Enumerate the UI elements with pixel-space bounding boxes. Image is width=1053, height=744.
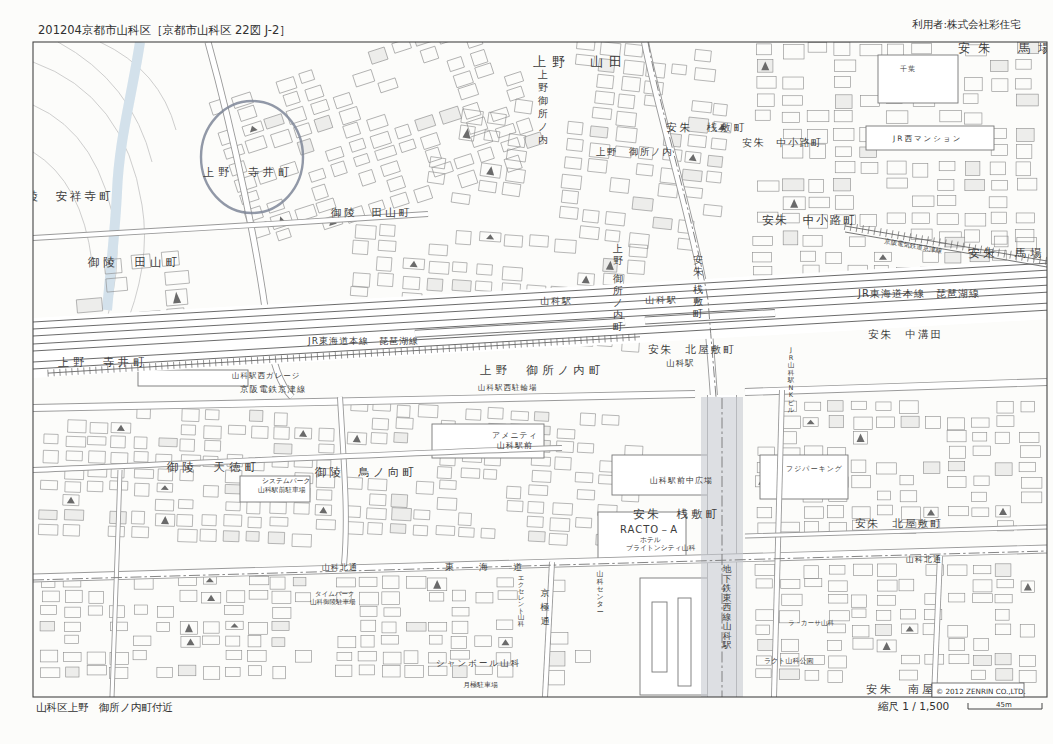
map-label-ueno-terai-2: 上野 寺井町 bbox=[58, 356, 148, 369]
map-label-racto-park: ラクト山科公園 bbox=[764, 657, 814, 665]
map-label-ueno-gosho-v2: 御 bbox=[613, 273, 623, 284]
map-canvas[interactable]: 201204京都市山科区［京都市山科区 22図 J-2］ 利用者:株式会社彩住宅… bbox=[0, 0, 1053, 744]
map-label-nk-bldg: ル bbox=[788, 406, 795, 414]
map-label-plaza: 山科駅前中広場 bbox=[650, 476, 713, 485]
building-triangle-marker bbox=[999, 508, 1007, 515]
building-triangle-marker bbox=[582, 275, 591, 283]
map-label-anshu-nakakoji-2: 安朱 中小路町 bbox=[762, 213, 857, 227]
svg-text:45m: 45m bbox=[996, 701, 1012, 709]
building-triangle-marker bbox=[486, 234, 494, 240]
map-label-fuji-parking: フジパーキング bbox=[786, 465, 843, 473]
map-label-ueno-gosho-v2: 所 bbox=[613, 285, 623, 296]
large-building-outline bbox=[878, 55, 958, 103]
building-triangle-marker bbox=[927, 509, 935, 515]
building-triangle-marker bbox=[410, 260, 418, 267]
map-label-cycle-park: 山科駅西駐輪場 bbox=[478, 383, 538, 392]
map-label-subway-v: 地 bbox=[722, 564, 732, 574]
building-triangle-marker bbox=[231, 623, 239, 627]
map-label-kyogoku-v: 京 bbox=[541, 588, 550, 598]
map-label-ueno-terai-1: 上野 寺井町 bbox=[203, 166, 293, 179]
building-triangle-marker bbox=[187, 638, 195, 645]
map-content: 上野 山田安朱 馬場安朱 桟敷町上野 御所ノ内安朱 中小路町安朱 中小路町御陵 … bbox=[11, 8, 1053, 697]
map-label-jr-tokaido-r: JR東海道本線 琵琶湖線 bbox=[857, 288, 980, 299]
map-label-subway-v: 東 bbox=[723, 593, 732, 603]
building-block bbox=[38, 403, 339, 548]
map-label-chanbord: シャンボール山科 bbox=[436, 658, 521, 668]
map-label-hotel-1: ホテル bbox=[640, 536, 661, 544]
map-label-anshu-sajiki-v: 敷 bbox=[693, 296, 703, 307]
map-label-anshu-kitayashiki-2: 安朱 北屋敷町 bbox=[855, 517, 943, 529]
map-label-sta-3: 山科駅 bbox=[666, 358, 695, 368]
large-building-outline bbox=[652, 602, 667, 672]
map-label-ueno-gosho-v1: 野 bbox=[538, 82, 548, 93]
building-triangle-marker bbox=[879, 254, 887, 259]
map-label-mansion: JR西マンション bbox=[892, 134, 962, 143]
map-label-center-v: ー bbox=[597, 608, 604, 616]
sheet-footer-area: 山科区上野 御所ノ内町付近 bbox=[36, 701, 173, 713]
building-block bbox=[40, 576, 311, 680]
building-triangle-marker bbox=[433, 580, 441, 589]
map-label-subway-v: 科 bbox=[723, 631, 732, 641]
building-triangle-marker bbox=[1024, 583, 1032, 591]
building-triangle-marker bbox=[906, 626, 914, 631]
map-label-ueno-gosho-h: 上野 御所ノ内町 bbox=[480, 363, 604, 377]
scale-label: 縮尺 1 / 1,500 bbox=[877, 700, 949, 712]
building-triangle-marker bbox=[248, 125, 257, 133]
building-triangle-marker bbox=[161, 516, 169, 524]
map-label-goryo-tentoku: 御陵 天徳町 bbox=[166, 460, 260, 474]
map-label-ueno-gosho-v2: 町 bbox=[613, 321, 623, 332]
map-label-anshu-nakamizota: 安朱 中溝田 bbox=[868, 328, 943, 340]
map-label-ueno-gosho-v1: ノ bbox=[538, 121, 548, 132]
map-label-anshu-sajiki-top: 安朱 桟敷町 bbox=[666, 121, 747, 133]
map-label-west-garage: 山科駅西ガレージ bbox=[232, 371, 301, 380]
map-label-ueno-gosho-v2: ノ bbox=[613, 297, 623, 308]
map-label-goryo-anshoji: 御陵 安祥寺町 bbox=[11, 189, 114, 203]
map-label-ueno-gosho-top: 上野 御所ノ内 bbox=[596, 146, 673, 157]
map-label-kita-dori-2: 山科北通 bbox=[906, 554, 942, 564]
building-triangle-marker bbox=[501, 639, 509, 645]
map-label-system-park-2: 山科駅前駐車場 bbox=[258, 486, 306, 494]
sheet-title: 201204京都市山科区［京都市山科区 22図 J-2］ bbox=[38, 23, 291, 37]
building-triangle-marker bbox=[299, 430, 307, 437]
map-label-subway-v: 山 bbox=[723, 621, 732, 631]
map-label-anshu-sajiki-v: 朱 bbox=[693, 266, 703, 277]
map-label-keihan-l: 京阪電鉄京津線 bbox=[240, 384, 307, 394]
map-label-la-casa: ラ・カーサ山科 bbox=[788, 619, 834, 627]
map-label-kita-dori-1: 山科北通 bbox=[322, 562, 358, 572]
map-label-excellent-v: 科 bbox=[518, 620, 525, 628]
map-label-anshu-baba-e: 安朱 馬場 bbox=[968, 246, 1046, 260]
svg-text:© 2012 ZENRIN CO.,LTD.: © 2012 ZENRIN CO.,LTD. bbox=[936, 687, 1026, 696]
map-label-anshu-kitayashiki-1: 安朱 北屋敷町 bbox=[648, 343, 736, 355]
map-label-goryo-tayama-1: 御陵 田山町 bbox=[330, 206, 412, 218]
map-label-goryo-torinomukai: 御陵 鳥ノ向町 bbox=[314, 465, 417, 479]
map-label-subway-v: 鉄 bbox=[722, 583, 732, 593]
map-label-tsukigime: 月極駐車場 bbox=[463, 681, 498, 689]
map-label-ueno-gosho-v2: 野 bbox=[613, 255, 623, 266]
building-triangle-marker bbox=[67, 497, 75, 504]
map-label-kyogoku-v: 極 bbox=[540, 602, 550, 612]
map-label-subway-v: 駅 bbox=[722, 640, 732, 650]
map-label-anshu-baba-ne: 安朱 馬場 bbox=[958, 41, 1053, 55]
map-label-time-park-2: 山科御陵駐車場 bbox=[310, 598, 356, 606]
map-label-ueno-gosho-v1: 所 bbox=[538, 108, 548, 119]
map-label-subway-v: 線 bbox=[722, 612, 732, 622]
building-block bbox=[548, 580, 591, 685]
map-label-sta-1: 山科駅 bbox=[540, 296, 573, 306]
building-triangle-marker bbox=[117, 425, 125, 431]
zenrin-map-page: 201204京都市山科区［京都市山科区 22図 J-2］ 利用者:株式会社彩住宅… bbox=[0, 0, 1053, 744]
copyright-box: © 2012 ZENRIN CO.,LTD. bbox=[932, 683, 1026, 697]
map-label-ueno-gosho-v2: 内 bbox=[613, 309, 623, 320]
building-triangle-marker bbox=[689, 154, 698, 162]
large-building-outline bbox=[612, 455, 712, 495]
map-label-racto: RACTO－A bbox=[620, 524, 678, 535]
map-label-ueno-gosho-v1: 上 bbox=[537, 69, 548, 80]
building-triangle-marker bbox=[790, 199, 798, 208]
map-label-subway-v: 下 bbox=[723, 574, 732, 584]
sheet-user: 利用者:株式会社彩住宅 bbox=[912, 18, 1021, 30]
map-label-anshu-sajiki-2: 安朱 桟敷町 bbox=[633, 507, 720, 521]
map-label-amenity-1: アメニティ bbox=[492, 431, 538, 440]
map-label-amenity-2: 山科駅前 bbox=[497, 441, 533, 450]
building-triangle-marker bbox=[172, 291, 181, 303]
map-label-sta-2: 山科駅 bbox=[645, 295, 678, 305]
map-label-anshu-sajiki-v: 町 bbox=[693, 308, 703, 319]
building-triangle-marker bbox=[185, 624, 193, 633]
map-label-anshu-sajiki-v: 桟 bbox=[693, 284, 703, 295]
large-building-outline bbox=[760, 455, 848, 499]
large-building-outline bbox=[678, 598, 691, 686]
building-triangle-marker bbox=[807, 420, 815, 425]
map-label-hotel-2: ブライトンシティ山科 bbox=[626, 544, 695, 552]
map-label-system-park-1: システムパーク bbox=[262, 477, 311, 485]
building-triangle-marker bbox=[883, 642, 891, 650]
map-label-ueno-gosho-v1: 内 bbox=[538, 134, 548, 145]
map-label-goryo-tayama-2: 御陵 田山町 bbox=[87, 255, 181, 269]
map-label-time-park-1: タイムパーク bbox=[315, 590, 355, 598]
map-label-ueno-gosho-v2: 上 bbox=[612, 243, 623, 254]
map-label-anshu-sajiki-v: 安 bbox=[693, 254, 703, 265]
map-label-kyogoku-v: 通 bbox=[541, 616, 550, 626]
map-label-anshu-nakakoji-1: 安朱 中小路町 bbox=[742, 137, 823, 148]
building-triangle-marker bbox=[207, 595, 215, 601]
map-label-chiba: 千葉 bbox=[900, 65, 916, 73]
building-triangle-marker bbox=[206, 578, 214, 582]
map-label-ueno-gosho-v1: 御 bbox=[538, 95, 548, 106]
building-triangle-marker bbox=[486, 166, 495, 176]
boundary-dashdot-line bbox=[33, 551, 1047, 580]
building-triangle-marker bbox=[353, 434, 361, 442]
building-triangle-marker bbox=[161, 485, 169, 490]
map-label-subway-v: 西 bbox=[723, 602, 732, 612]
scale-bar: 45m bbox=[968, 701, 1042, 709]
map-label-tokaido-road: 東 海 道 bbox=[445, 562, 530, 572]
building-triangle-marker bbox=[319, 507, 327, 514]
map-label-jr-tokaido-l: JR東海道本線 琵琶湖線 bbox=[307, 336, 419, 346]
building-triangle-marker bbox=[857, 434, 865, 443]
map-label-ueno-yamada: 上野 山田 bbox=[533, 54, 628, 69]
